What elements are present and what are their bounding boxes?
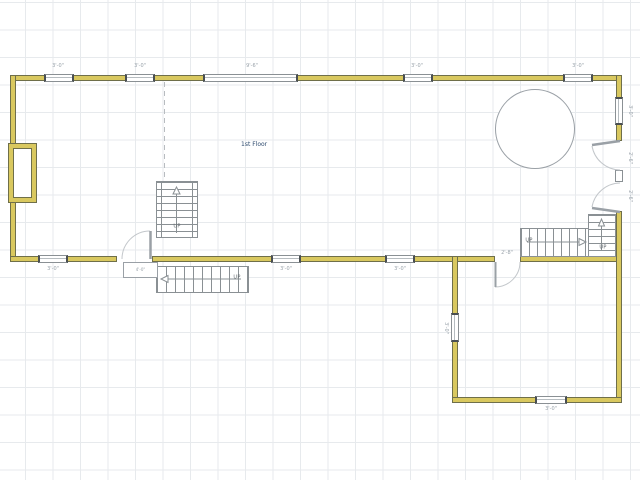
stair-up-label: UP [173, 225, 180, 230]
dimension-label: 3'-0" [443, 322, 448, 334]
stair-up-label: UP [233, 276, 240, 281]
window [44, 74, 74, 82]
wall-bottom-mid-segment [152, 256, 495, 262]
door-jamb [615, 170, 623, 182]
dimension-label: 3'-0" [572, 64, 584, 69]
floor-plan-canvas: 4'-0" 1st Floor UP UP UP UP 3'-0" 3'-0" … [0, 0, 640, 480]
window [563, 74, 593, 82]
door-leaf [592, 141, 620, 145]
window [615, 97, 623, 125]
stair-up-label: UP [599, 246, 606, 251]
entry-landing: 4'-0" [123, 262, 158, 278]
dimension-label: 3'-0" [394, 267, 406, 272]
window [125, 74, 155, 82]
window [203, 74, 298, 82]
stair-right-vertical-run [588, 214, 616, 257]
dimension-label: 3'-0" [627, 105, 632, 117]
fireplace-bumpout [9, 144, 36, 202]
round-fixture-circle [496, 90, 575, 169]
window [403, 74, 433, 82]
dimension-label: 3'-0" [47, 267, 59, 272]
dimension-label: 3'-0" [411, 64, 423, 69]
window [535, 396, 567, 404]
dimension-label: 3'-0" [545, 407, 557, 412]
wall-right-lower-segment [616, 211, 622, 403]
dimension-label: 3'-0" [52, 64, 64, 69]
door-swing-arc [122, 231, 150, 259]
door-swing-arc [592, 146, 620, 170]
dimension-label: 2'-6" [627, 152, 632, 164]
stair-up-label: UP [525, 239, 532, 244]
dimension-label: 9'-6" [246, 64, 258, 69]
window [271, 255, 301, 263]
window [451, 313, 459, 342]
dimension-label: 2'-6" [627, 190, 632, 202]
window [38, 255, 68, 263]
landing-dimension-label: 4'-0" [136, 268, 145, 272]
dimension-label: 3'-0" [280, 267, 292, 272]
dimension-label: 3'-0" [134, 64, 146, 69]
wall-top [10, 75, 622, 81]
door-swing-arc [592, 183, 620, 207]
dimension-label: 2'-8" [501, 251, 513, 256]
window [385, 255, 415, 263]
door-swing-arc [495, 262, 520, 287]
floor-title: 1st Floor [241, 142, 267, 148]
